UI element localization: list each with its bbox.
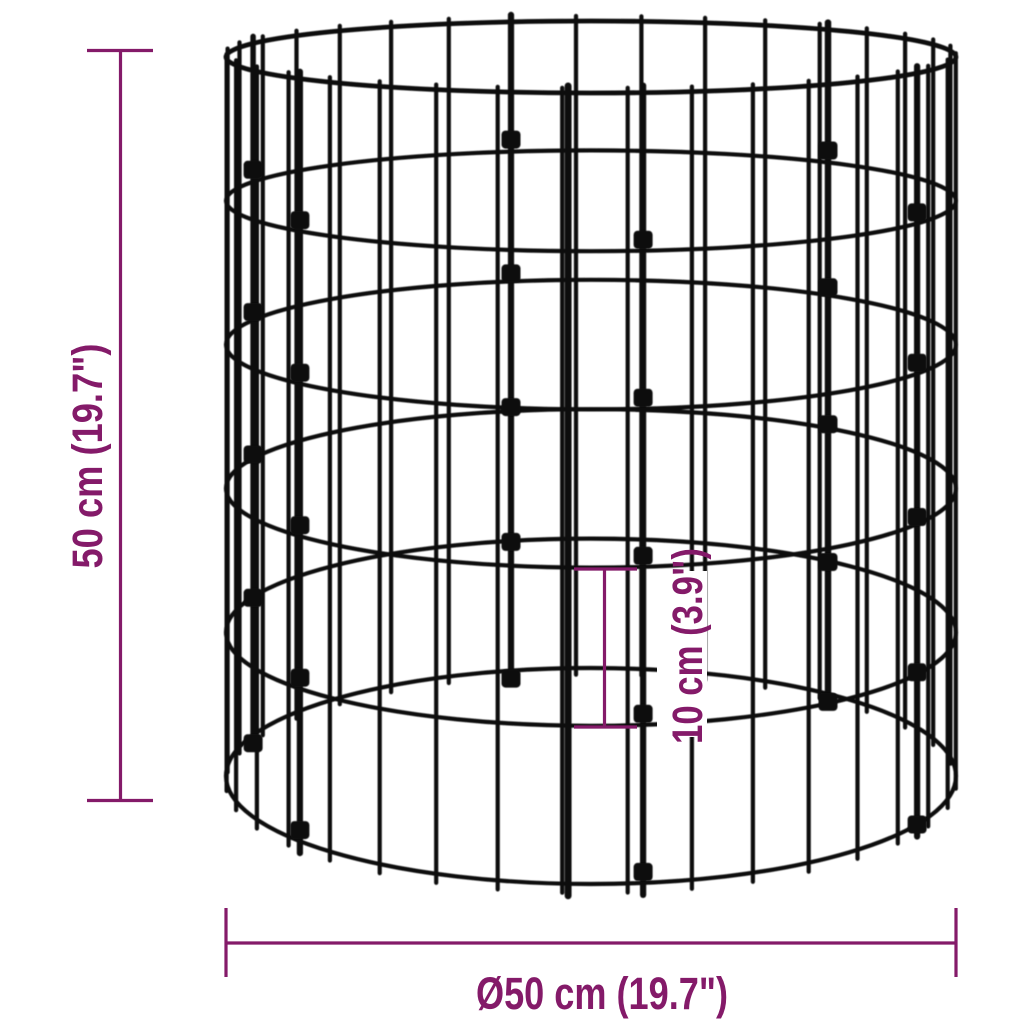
svg-text:10 cm (3.9"): 10 cm (3.9") <box>664 548 712 744</box>
svg-text:Ø50 cm (19.7"): Ø50 cm (19.7") <box>476 968 728 1019</box>
svg-text:50 cm (19.7"): 50 cm (19.7") <box>64 344 112 569</box>
